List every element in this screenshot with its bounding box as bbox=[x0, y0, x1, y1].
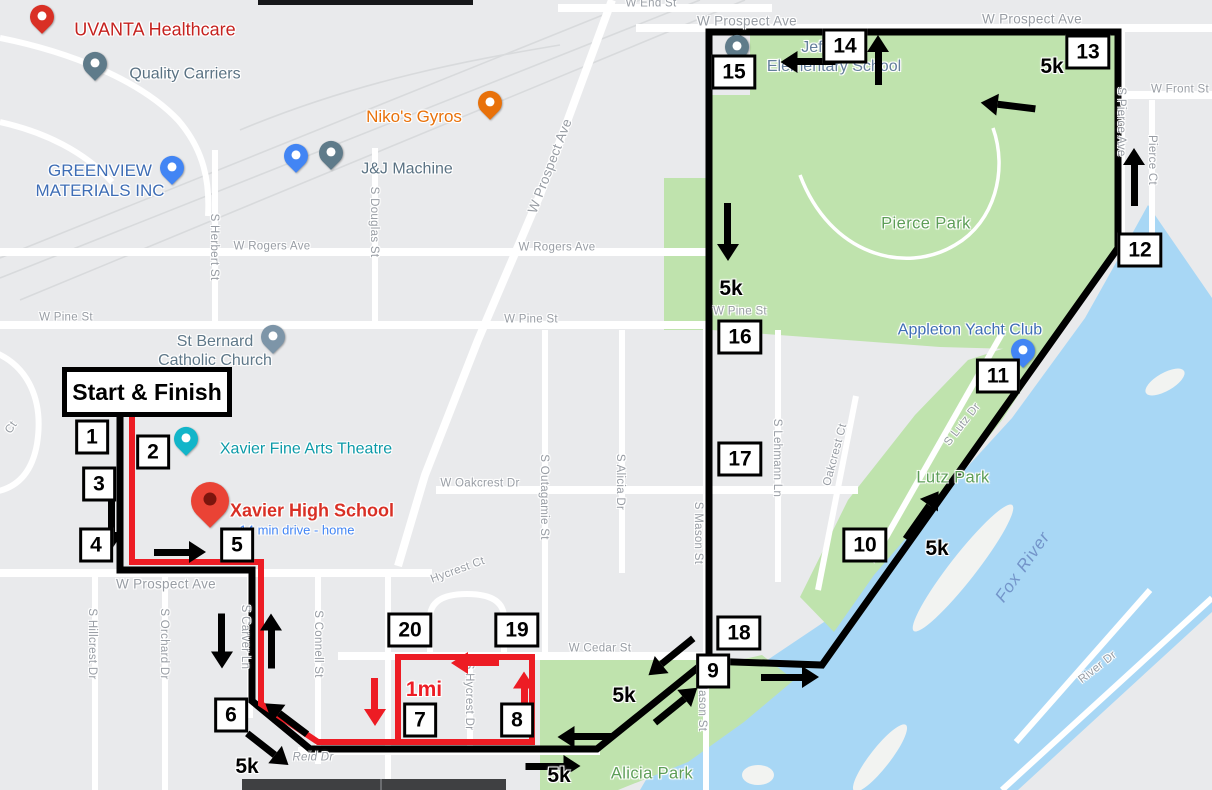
race-course-map[interactable]: Start & Finish W End StW Prospect AveW P… bbox=[0, 0, 1212, 790]
street-label: W Rogers Ave bbox=[234, 241, 311, 253]
route-marker-3: 3 bbox=[82, 467, 116, 502]
street-label: S Herbert St bbox=[207, 214, 219, 281]
red-direction-arrow bbox=[451, 652, 499, 674]
street-label: W Oakcrest Dr bbox=[440, 478, 519, 490]
route-marker-1: 1 bbox=[75, 420, 109, 455]
street-label: S Pierce Ave bbox=[1114, 87, 1126, 156]
route-marker-4: 4 bbox=[79, 528, 113, 563]
top-window-bar bbox=[258, 0, 473, 5]
route-marker-9: 9 bbox=[696, 654, 730, 689]
nikos-gyros-pin[interactable] bbox=[478, 91, 502, 115]
street-label: W End St bbox=[626, 0, 677, 10]
route-marker-11: 11 bbox=[976, 359, 1020, 394]
route-marker-15: 15 bbox=[711, 55, 756, 90]
street-label: W Pine St bbox=[39, 312, 93, 324]
distance-label: 5k bbox=[1040, 55, 1063, 79]
distance-label: 1mi bbox=[406, 678, 442, 702]
xavier-high-school-label[interactable]: Xavier High School bbox=[230, 500, 394, 521]
black-direction-arrow bbox=[867, 35, 889, 85]
route-marker-20: 20 bbox=[387, 613, 432, 648]
street-label: S Alicia Dr bbox=[613, 454, 625, 510]
street-label: Reid Dr bbox=[292, 752, 333, 764]
street-label: Pierce Ct bbox=[1145, 135, 1157, 185]
park-label: Pierce Park bbox=[881, 215, 971, 234]
xavier-theatre-label[interactable]: Xavier Fine Arts Theatre bbox=[220, 441, 392, 460]
street-label: W Pine St bbox=[713, 306, 767, 318]
black-direction-arrow bbox=[761, 666, 819, 688]
street-label: S Lehmann Ln bbox=[770, 419, 782, 497]
black-direction-arrow bbox=[154, 541, 206, 563]
nikos-gyros-label[interactable]: Niko's Gyros bbox=[366, 107, 462, 127]
black-direction-arrow bbox=[717, 203, 739, 261]
street-label: S Douglas St bbox=[367, 187, 379, 258]
bottom-window-bar bbox=[242, 779, 506, 790]
red-direction-arrow bbox=[364, 678, 386, 726]
route-marker-2: 2 bbox=[136, 435, 170, 470]
bottom-bar-divider bbox=[380, 779, 382, 790]
route-marker-13: 13 bbox=[1065, 35, 1110, 70]
route-marker-18: 18 bbox=[716, 616, 761, 651]
jj-machine-label[interactable]: J&J Machine bbox=[361, 161, 453, 180]
black-direction-arrow bbox=[211, 614, 233, 669]
street-label: W Prospect Ave bbox=[982, 12, 1082, 26]
black-direction-arrow bbox=[260, 614, 282, 669]
street-label: S Mason St bbox=[691, 502, 703, 564]
xavier-theatre-pin[interactable] bbox=[174, 427, 198, 451]
st-bernard-church-pin[interactable] bbox=[261, 325, 285, 349]
jj-machine-pin[interactable] bbox=[319, 141, 343, 165]
street-label: S Outagamie St bbox=[537, 454, 549, 539]
distance-label: 5k bbox=[925, 537, 948, 561]
street-label: W Rogers Ave bbox=[519, 242, 596, 254]
route-marker-7: 7 bbox=[403, 703, 437, 738]
distance-label: 5k bbox=[547, 764, 570, 788]
greenview-materials-label[interactable]: GREENVIEWMATERIALS INC bbox=[35, 161, 164, 201]
jj-shopping-pin[interactable] bbox=[284, 144, 308, 168]
street-label: W Front St bbox=[1151, 84, 1209, 96]
distance-label: 5k bbox=[612, 684, 635, 708]
street-label: W Prospect Ave bbox=[697, 14, 797, 28]
route-marker-8: 8 bbox=[500, 703, 534, 738]
distance-label: 5k bbox=[719, 277, 742, 301]
black-direction-arrow bbox=[558, 726, 613, 748]
uvanta-healthcare-pin[interactable] bbox=[30, 5, 54, 29]
street-label: S Carver Ln bbox=[238, 605, 250, 670]
xavier-drive-time-label[interactable]: 14 min drive - home bbox=[240, 522, 355, 537]
quality-carriers-label[interactable]: Quality Carriers bbox=[129, 66, 240, 85]
street-label: W Prospect Ave bbox=[116, 577, 216, 591]
street-label: W Pine St bbox=[504, 314, 558, 326]
route-marker-17: 17 bbox=[717, 442, 762, 477]
street-label: S Hillcrest Dr bbox=[85, 608, 97, 679]
st-bernard-label[interactable]: St BernardCatholic Church bbox=[158, 333, 272, 371]
street-label: S Connell St bbox=[311, 610, 323, 678]
park-label: Lutz Park bbox=[916, 469, 989, 488]
start-finish-box: Start & Finish bbox=[62, 367, 232, 417]
greenview-materials-pin[interactable] bbox=[160, 156, 184, 180]
street-label: S Orchard Dr bbox=[157, 608, 169, 679]
route-marker-10: 10 bbox=[842, 528, 887, 563]
route-marker-6: 6 bbox=[214, 698, 248, 733]
xavier-high-school-pin[interactable] bbox=[191, 482, 229, 520]
route-marker-14: 14 bbox=[822, 29, 867, 64]
route-marker-12: 12 bbox=[1117, 233, 1162, 268]
route-marker-16: 16 bbox=[717, 320, 762, 355]
park-label: Alicia Park bbox=[611, 765, 693, 784]
route-marker-5: 5 bbox=[220, 528, 254, 563]
route-marker-19: 19 bbox=[494, 613, 539, 648]
quality-carriers-pin[interactable] bbox=[83, 52, 107, 76]
uvanta-healthcare-label[interactable]: UVANTA Healthcare bbox=[74, 19, 235, 40]
distance-label: 5k bbox=[235, 755, 258, 779]
black-direction-arrow bbox=[1123, 148, 1145, 206]
street-label: W Cedar St bbox=[569, 643, 631, 655]
